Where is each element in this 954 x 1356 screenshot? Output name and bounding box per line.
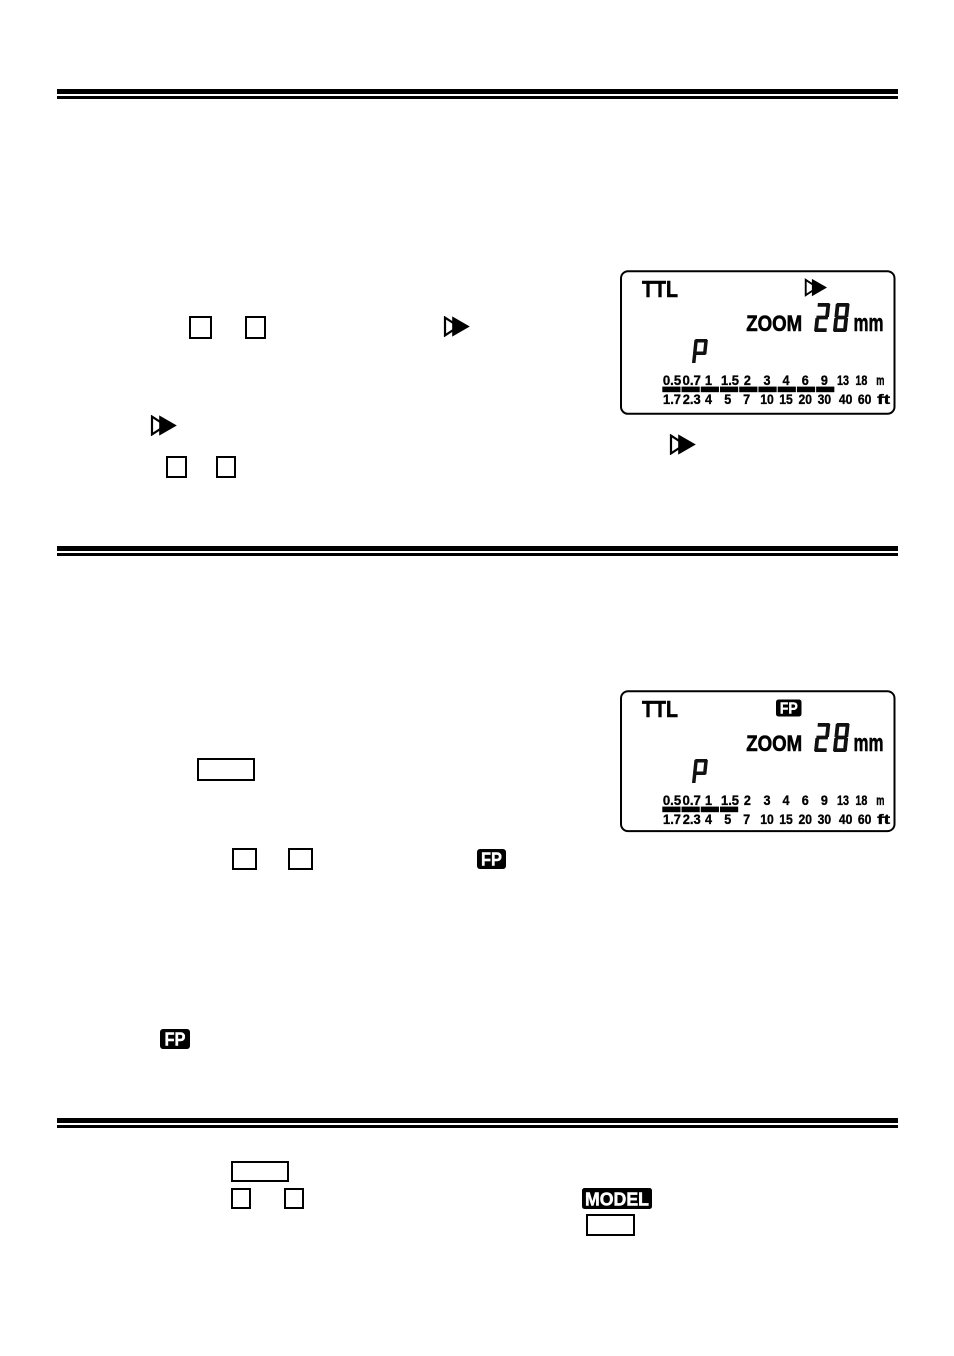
svg-text:4: 4 [705, 392, 712, 408]
svg-text:FP: FP [780, 701, 798, 718]
svg-text:15: 15 [779, 392, 793, 408]
svg-text:18: 18 [855, 793, 867, 809]
svg-text:TTL: TTL [642, 696, 678, 722]
svg-text:15: 15 [779, 812, 793, 828]
svg-text:5: 5 [724, 392, 731, 408]
svg-text:m: m [876, 793, 884, 809]
svg-text:30: 30 [818, 812, 832, 828]
svg-text:4: 4 [705, 812, 712, 828]
svg-text:ft: ft [877, 392, 890, 408]
svg-text:2.3: 2.3 [683, 812, 701, 828]
svg-text:MODEL: MODEL [585, 1189, 649, 1210]
svg-text:5: 5 [724, 812, 731, 828]
svg-text:13: 13 [837, 373, 849, 389]
svg-text:18: 18 [855, 373, 867, 389]
svg-text:mm: mm [854, 730, 884, 757]
svg-text:7: 7 [743, 392, 750, 408]
svg-text:TTL: TTL [642, 276, 678, 302]
svg-text:60: 60 [858, 812, 872, 828]
svg-text:1: 1 [705, 793, 712, 809]
svg-text:4: 4 [783, 793, 790, 809]
svg-text:1.7: 1.7 [663, 392, 681, 408]
svg-text:60: 60 [858, 392, 872, 408]
svg-text:6: 6 [802, 793, 809, 809]
svg-text:10: 10 [760, 392, 774, 408]
svg-text:40: 40 [839, 392, 853, 408]
svg-text:ZOOM: ZOOM [746, 311, 802, 336]
svg-text:0.5: 0.5 [663, 793, 681, 809]
svg-text:ft: ft [877, 812, 890, 828]
svg-text:1.5: 1.5 [721, 793, 739, 809]
svg-text:ZOOM: ZOOM [746, 731, 802, 756]
svg-text:40: 40 [839, 812, 853, 828]
svg-text:2: 2 [744, 793, 751, 809]
svg-text:20: 20 [799, 812, 813, 828]
svg-text:FP: FP [481, 849, 502, 869]
svg-text:1.7: 1.7 [663, 812, 681, 828]
svg-text:mm: mm [854, 310, 884, 337]
svg-text:0.7: 0.7 [683, 793, 701, 809]
svg-text:30: 30 [818, 392, 832, 408]
svg-text:7: 7 [743, 812, 750, 828]
svg-text:3: 3 [764, 793, 771, 809]
svg-text:20: 20 [799, 392, 813, 408]
svg-text:9: 9 [821, 793, 828, 809]
svg-text:13: 13 [837, 793, 849, 809]
svg-text:m: m [876, 373, 884, 389]
svg-text:2.3: 2.3 [683, 392, 701, 408]
svg-text:FP: FP [165, 1029, 186, 1049]
svg-text:10: 10 [760, 812, 774, 828]
